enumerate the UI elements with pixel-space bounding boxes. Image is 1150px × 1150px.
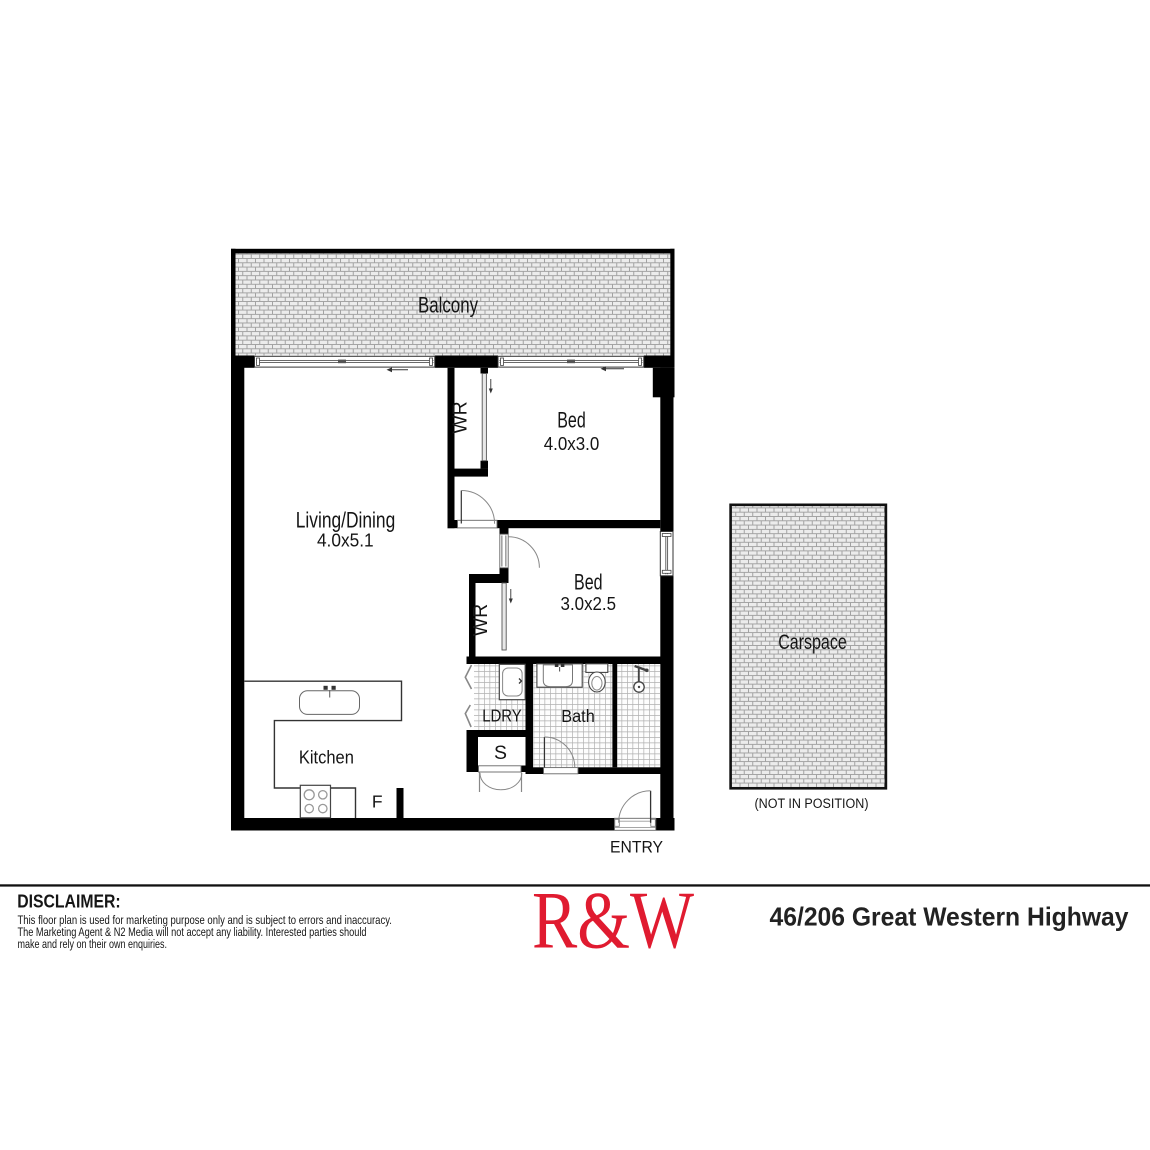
svg-text:WR: WR xyxy=(450,401,472,434)
svg-text:4.0x5.1: 4.0x5.1 xyxy=(317,529,374,550)
svg-text:ENTRY: ENTRY xyxy=(610,838,663,857)
svg-text:Kitchen: Kitchen xyxy=(299,746,354,767)
svg-text:R&W: R&W xyxy=(532,875,694,966)
svg-text:WR: WR xyxy=(470,604,492,637)
svg-text:Bed: Bed xyxy=(574,570,603,595)
svg-text:Bed: Bed xyxy=(557,407,586,432)
svg-text:make and rely on their own enq: make and rely on their own enquiries. xyxy=(18,937,168,951)
svg-text:4.0x3.0: 4.0x3.0 xyxy=(544,433,600,454)
svg-text:S: S xyxy=(494,742,507,764)
svg-text:F: F xyxy=(372,791,383,811)
svg-text:(NOT IN POSITION): (NOT IN POSITION) xyxy=(755,796,869,812)
svg-text:3.0x2.5: 3.0x2.5 xyxy=(561,593,617,614)
svg-text:DISCLAIMER:: DISCLAIMER: xyxy=(17,891,121,911)
svg-text:Bath: Bath xyxy=(561,706,595,726)
svg-text:46/206 Great Western Highway: 46/206 Great Western Highway xyxy=(770,902,1130,932)
svg-text:Balcony: Balcony xyxy=(418,293,479,318)
svg-text:Carspace: Carspace xyxy=(778,631,847,654)
svg-text:LDRY: LDRY xyxy=(482,705,522,725)
